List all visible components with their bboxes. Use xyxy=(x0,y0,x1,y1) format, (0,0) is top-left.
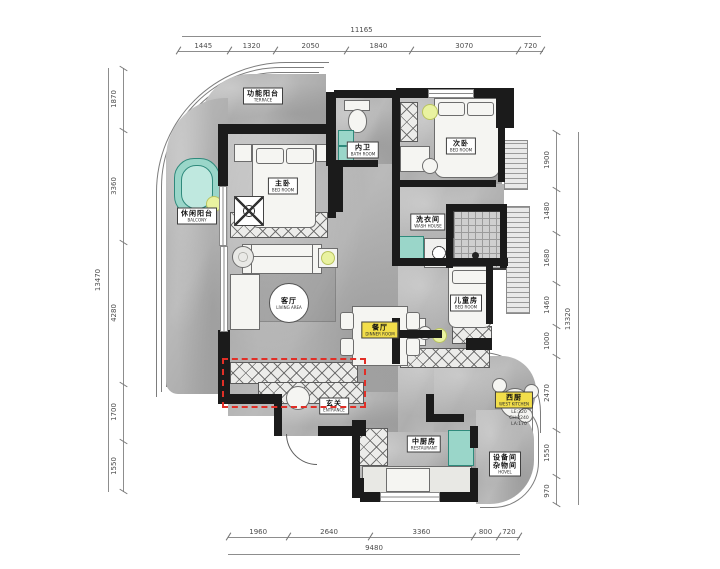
dim-chain-right: 1900 1480 1680 1460 1000 2470 1550 970 xyxy=(545,132,557,505)
dim-chain-left: 1870 3360 4280 1700 1550 xyxy=(112,68,124,492)
room-label-en: RESTAURANT xyxy=(411,446,437,451)
plant xyxy=(232,246,254,268)
room-label-en: BALCONY xyxy=(181,218,213,223)
nightstand xyxy=(234,144,252,162)
room-label-terrace: 功能阳台 TERRACE xyxy=(243,88,283,105)
wall xyxy=(470,426,478,448)
pillow xyxy=(438,102,465,116)
dim-chain-top: 1445 1320 2050 1840 3070 720 xyxy=(178,40,543,52)
pillow xyxy=(467,102,494,116)
window xyxy=(220,246,228,332)
dim-seg: 1700 xyxy=(112,384,124,440)
stove xyxy=(386,468,430,492)
room-label-cn: 休闲阳台 xyxy=(181,210,213,218)
room-label-kids-room: 儿童房 BED ROOM xyxy=(450,295,482,312)
wall xyxy=(392,166,400,266)
floor-plan-canvas: 11165 1445 1320 2050 1840 3070 720 1960 … xyxy=(0,0,720,569)
entry-door-arc xyxy=(286,434,317,465)
downlight xyxy=(422,104,438,120)
downlight xyxy=(321,251,335,265)
dim-seg: 720 xyxy=(498,526,520,538)
room-label-cn: 儿童房 xyxy=(454,297,478,305)
wall xyxy=(218,124,228,186)
wall xyxy=(336,162,343,212)
dim-seg: 1000 xyxy=(545,326,557,356)
dim-seg: 1870 xyxy=(112,68,124,130)
dim-seg: 2470 xyxy=(545,356,557,430)
chair xyxy=(340,338,354,356)
dim-seg: 1320 xyxy=(229,40,275,52)
dim-seg: 1460 xyxy=(545,283,557,327)
dim-seg: 1680 xyxy=(545,233,557,283)
chaise xyxy=(230,274,260,330)
dim-right-overall: 13320 xyxy=(566,132,579,505)
window xyxy=(219,186,227,246)
room-label-en: BED ROOM xyxy=(454,305,478,310)
chair xyxy=(406,338,420,356)
room-label-en: WEST KITCHEN xyxy=(499,402,529,407)
dim-seg: 1960 xyxy=(228,526,288,538)
room-label-cn: 设备间 xyxy=(493,454,517,462)
wall xyxy=(470,468,478,502)
annotation-line: CH:2240 xyxy=(509,416,529,421)
room-label-wash-house: 洗衣间 WASH HOUSE xyxy=(410,214,445,231)
chair xyxy=(340,312,354,330)
dim-seg: 2640 xyxy=(288,526,369,538)
wall xyxy=(218,124,336,134)
chair xyxy=(406,312,420,330)
dim-seg: 1900 xyxy=(545,132,557,189)
annotation-line: LA:170 xyxy=(511,422,527,427)
room-label-cn2: 杂物间 xyxy=(493,462,517,470)
room-label-cn: 洗衣间 xyxy=(414,216,441,224)
wall xyxy=(434,414,464,422)
height-annotation: LE:320 CH:2240 LA:170 xyxy=(497,410,541,428)
wall xyxy=(426,394,434,422)
window xyxy=(428,89,474,98)
annotation-line: LE:320 xyxy=(511,410,526,415)
dim-seg: 1480 xyxy=(545,189,557,233)
sofa-seat xyxy=(248,256,316,274)
wall xyxy=(398,330,442,338)
dim-seg: 2050 xyxy=(275,40,347,52)
room-label-balcony: 休闲阳台 BALCONY xyxy=(177,208,217,225)
room-label-cn: 中厨房 xyxy=(411,438,437,446)
wall xyxy=(352,426,360,482)
wall xyxy=(486,266,493,324)
dim-seg: 4280 xyxy=(112,242,124,384)
room-label-kitchen: 中厨房 RESTAURANT xyxy=(407,436,441,453)
wall xyxy=(498,98,505,182)
room-label-en: HOVEL xyxy=(493,470,517,475)
room-label-en: WASH HOUSE xyxy=(414,224,441,229)
wall xyxy=(392,98,400,166)
room-label-bathroom: 内卫 BATH ROOM xyxy=(347,142,379,159)
dim-bottom-overall: 9480 xyxy=(228,542,520,555)
dim-seg: 3360 xyxy=(112,130,124,242)
room-label-cn: 主卧 xyxy=(272,180,294,188)
dim-seg: 1840 xyxy=(346,40,410,52)
chair xyxy=(422,158,438,174)
bay-window xyxy=(506,206,530,314)
room-label-cn: 次卧 xyxy=(450,140,472,148)
room-label-cn: 客厅 xyxy=(270,297,308,305)
room-label-living: 客厅 LIVING AREA xyxy=(269,283,309,323)
second-bedroom-wardrobe xyxy=(400,102,418,142)
dim-seg: 720 xyxy=(518,40,543,52)
window xyxy=(380,492,440,502)
room-label-en: DINNER ROOM xyxy=(365,332,394,337)
wall xyxy=(446,204,506,211)
room-label-en: TERRACE xyxy=(247,98,279,103)
dim-seg: 970 xyxy=(545,476,557,505)
pillow xyxy=(286,148,314,164)
wall xyxy=(398,180,496,187)
wall xyxy=(466,338,492,350)
room-label-en: BATH ROOM xyxy=(351,152,375,157)
dim-seg: 1445 xyxy=(178,40,229,52)
room-label-en: BED ROOM xyxy=(450,148,472,153)
pillow xyxy=(256,148,284,164)
room-label-utility: 设备间 杂物间 HOVEL xyxy=(489,452,521,477)
pillow xyxy=(452,270,488,284)
room-label-en: ENTRANCE xyxy=(323,408,345,413)
dim-chain-bottom: 1960 2640 3360 800 720 xyxy=(228,526,520,538)
dim-seg: 3070 xyxy=(411,40,518,52)
wall xyxy=(334,90,398,98)
bay-window xyxy=(504,140,528,190)
dim-seg: 1550 xyxy=(545,430,557,476)
room-label-dining: 餐厅 DINNER ROOM xyxy=(361,322,398,339)
room-label-west-kitchen: 西厨 WEST KITCHEN xyxy=(495,392,533,409)
dim-top-overall: 11165 xyxy=(182,24,541,37)
room-label-master-bedroom: 主卧 BED ROOM xyxy=(268,178,298,195)
room-label-cn: 西厨 xyxy=(499,394,529,402)
room-label-second-bedroom: 次卧 BED ROOM xyxy=(446,138,476,155)
wall xyxy=(392,258,508,266)
ceiling-lamp-symbol xyxy=(234,196,264,226)
dim-seg: 1550 xyxy=(112,441,124,493)
room-label-cn: 功能阳台 xyxy=(247,90,279,98)
wall xyxy=(328,134,336,218)
room-label-en: LIVING AREA xyxy=(270,305,308,310)
dim-left-overall: 13470 xyxy=(96,68,109,492)
highlight-dashed-box xyxy=(222,358,366,408)
dim-seg: 800 xyxy=(473,526,498,538)
room-label-cn: 餐厅 xyxy=(365,324,394,332)
room-label-en: BED ROOM xyxy=(272,188,294,193)
room-label-cn: 内卫 xyxy=(351,144,375,152)
dim-seg: 3360 xyxy=(370,526,474,538)
